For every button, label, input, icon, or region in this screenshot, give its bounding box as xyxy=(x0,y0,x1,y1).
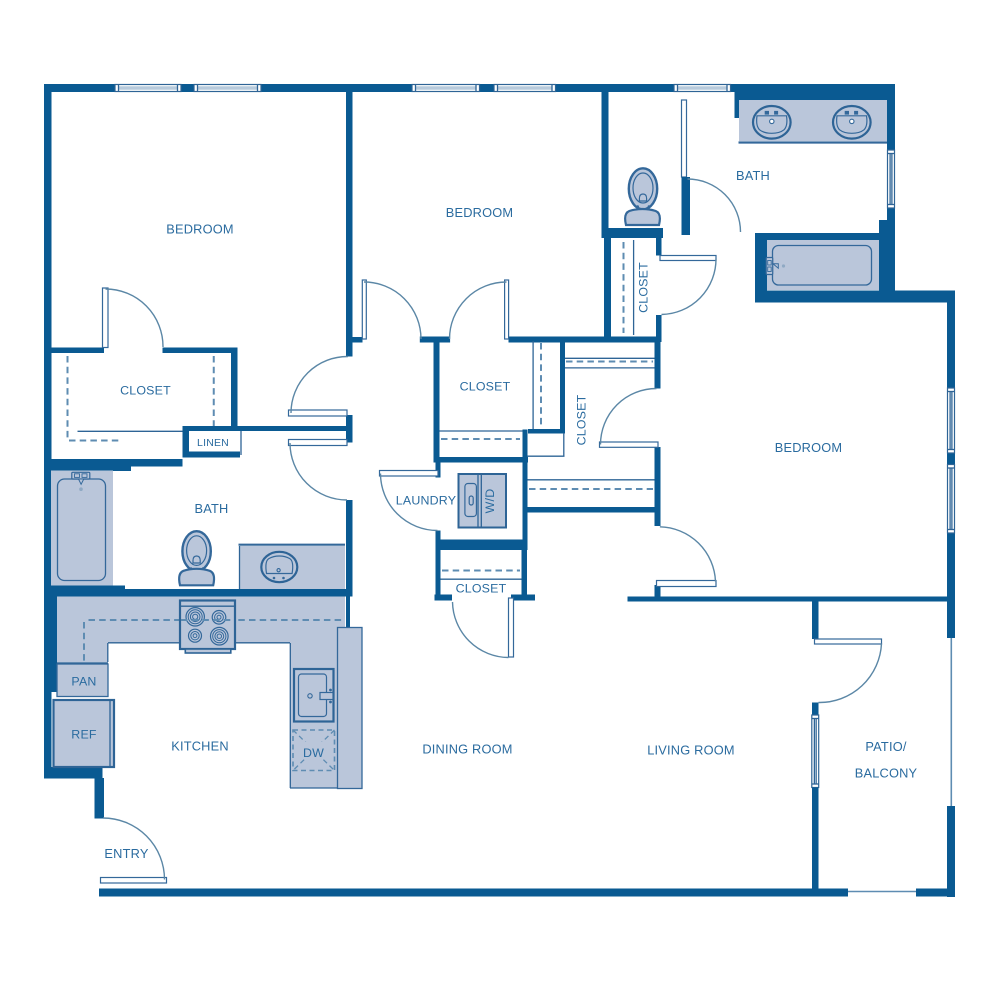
svg-text:REF: REF xyxy=(71,728,97,742)
svg-text:PAN: PAN xyxy=(71,675,96,689)
svg-text:BATH: BATH xyxy=(736,168,770,183)
svg-text:BALCONY: BALCONY xyxy=(855,766,918,781)
svg-text:BEDROOM: BEDROOM xyxy=(166,222,234,237)
svg-text:PATIO/: PATIO/ xyxy=(865,739,906,754)
svg-text:LAUNDRY: LAUNDRY xyxy=(396,494,456,508)
svg-text:LIVING ROOM: LIVING ROOM xyxy=(647,743,735,758)
svg-text:CLOSET: CLOSET xyxy=(637,262,651,313)
svg-text:CLOSET: CLOSET xyxy=(456,582,507,596)
svg-text:CLOSET: CLOSET xyxy=(575,394,589,445)
svg-text:DINING ROOM: DINING ROOM xyxy=(422,742,512,757)
svg-text:BATH: BATH xyxy=(195,501,229,516)
svg-text:ENTRY: ENTRY xyxy=(104,846,148,861)
svg-text:BEDROOM: BEDROOM xyxy=(775,440,843,455)
svg-text:CLOSET: CLOSET xyxy=(120,384,171,398)
svg-text:W/D: W/D xyxy=(483,489,497,514)
svg-text:BEDROOM: BEDROOM xyxy=(446,205,514,220)
svg-text:CLOSET: CLOSET xyxy=(460,380,511,394)
svg-text:DW: DW xyxy=(303,746,324,760)
svg-text:KITCHEN: KITCHEN xyxy=(171,739,229,754)
svg-text:LINEN: LINEN xyxy=(197,437,229,449)
